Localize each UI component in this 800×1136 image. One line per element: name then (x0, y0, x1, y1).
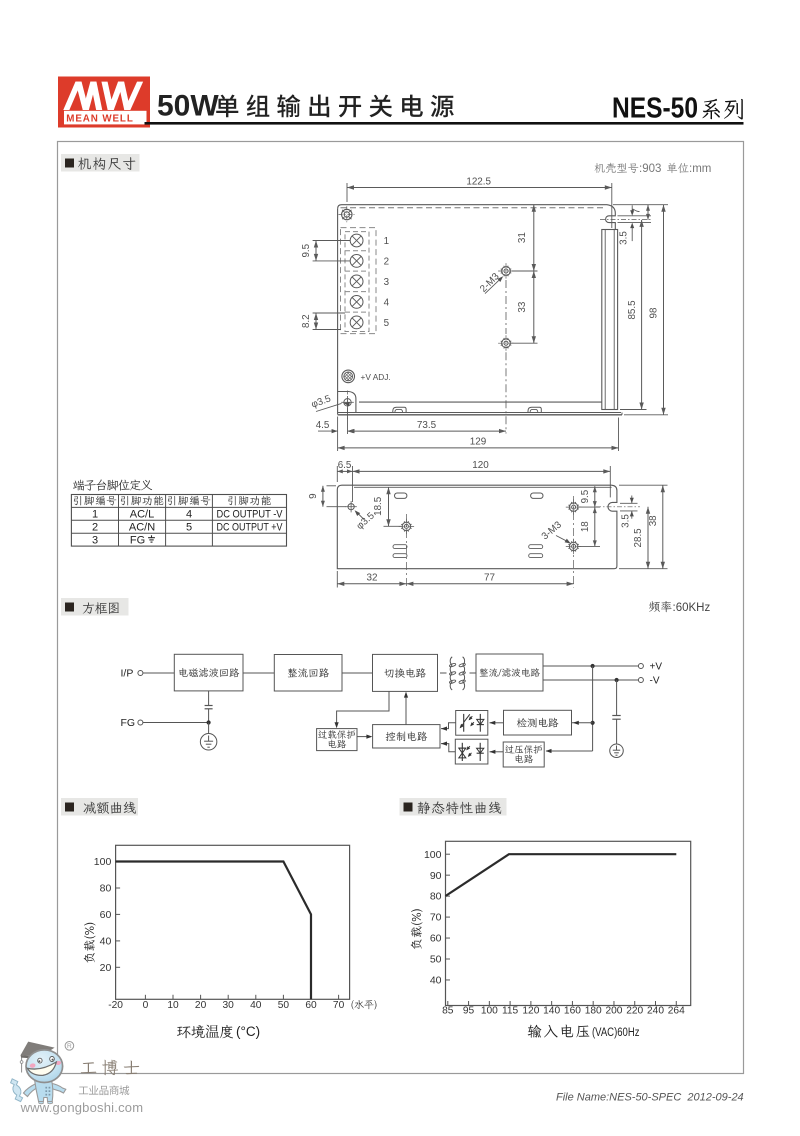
svg-text:18: 18 (580, 521, 591, 532)
svg-text:4.5: 4.5 (316, 420, 330, 431)
svg-text:100: 100 (94, 856, 112, 868)
svg-text:20: 20 (195, 1000, 207, 1011)
svg-text::903: :903 (639, 163, 661, 175)
svg-text:+V: +V (650, 662, 663, 673)
svg-text:160: 160 (564, 1006, 581, 1017)
svg-text:180: 180 (585, 1006, 602, 1017)
svg-text:3.5: 3.5 (621, 514, 632, 528)
svg-text:31: 31 (517, 232, 528, 243)
svg-text:85.5: 85.5 (627, 300, 638, 320)
svg-text:-20: -20 (108, 1000, 123, 1011)
svg-text:40: 40 (250, 1000, 262, 1011)
svg-text:33: 33 (517, 301, 528, 312)
svg-text:8.2: 8.2 (301, 314, 312, 328)
svg-text:DC OUTPUT -V: DC OUTPUT -V (217, 509, 284, 521)
svg-text::60KHz: :60KHz (673, 602, 711, 614)
svg-text:18.5: 18.5 (373, 496, 384, 516)
svg-text:DC OUTPUT +V: DC OUTPUT +V (217, 521, 284, 533)
svg-text:115: 115 (502, 1006, 519, 1017)
svg-text:95: 95 (463, 1006, 475, 1017)
svg-text:77: 77 (484, 572, 495, 583)
svg-text:-V: -V (650, 676, 660, 687)
svg-text:3: 3 (384, 277, 390, 288)
svg-text:50W: 50W (157, 90, 219, 123)
svg-text:1: 1 (92, 509, 98, 521)
svg-text:60: 60 (100, 909, 112, 921)
svg-text:10: 10 (167, 1000, 179, 1011)
svg-text:AC/L: AC/L (130, 509, 154, 521)
svg-text:FG: FG (130, 534, 145, 546)
svg-text:60: 60 (305, 1000, 317, 1011)
svg-text:98: 98 (648, 307, 659, 318)
svg-text:4: 4 (186, 509, 192, 521)
svg-text::mm: :mm (689, 163, 711, 175)
svg-text:MEAN WELL: MEAN WELL (66, 114, 133, 125)
svg-text:100: 100 (424, 849, 442, 861)
svg-text:70: 70 (333, 1000, 345, 1011)
svg-text:3: 3 (92, 534, 98, 546)
svg-text:40: 40 (430, 975, 442, 987)
svg-text:80: 80 (100, 883, 112, 895)
svg-text:1: 1 (384, 236, 389, 247)
svg-text:120: 120 (472, 460, 489, 471)
svg-text:9: 9 (308, 493, 319, 498)
svg-text:9.5: 9.5 (580, 489, 591, 503)
svg-text:R: R (67, 1043, 72, 1050)
svg-text:122.5: 122.5 (466, 176, 491, 187)
svg-text:4: 4 (384, 298, 390, 309)
svg-text:50: 50 (278, 1000, 290, 1011)
svg-text:100: 100 (481, 1006, 498, 1017)
svg-text:50: 50 (430, 954, 442, 966)
svg-text:140: 140 (543, 1006, 560, 1017)
svg-text:File Name:NES-50-SPEC 2012-09: File Name:NES-50-SPEC 2012-09-24 (556, 1092, 744, 1104)
svg-text:200: 200 (605, 1006, 622, 1017)
svg-text:38: 38 (648, 515, 659, 526)
svg-text:6.5: 6.5 (338, 460, 352, 471)
svg-text:70: 70 (430, 912, 442, 924)
svg-text:2: 2 (92, 521, 98, 533)
svg-text:120: 120 (522, 1006, 539, 1017)
svg-text:80: 80 (430, 891, 442, 903)
svg-text:240: 240 (647, 1006, 664, 1017)
svg-text:264: 264 (668, 1006, 685, 1017)
svg-text:220: 220 (626, 1006, 643, 1017)
svg-text:85: 85 (442, 1006, 454, 1017)
svg-text:90: 90 (430, 870, 442, 882)
svg-text:30: 30 (223, 1000, 235, 1011)
svg-text:40: 40 (100, 936, 112, 948)
svg-text:www.gongboshi.com: www.gongboshi.com (20, 1100, 144, 1115)
svg-text:5: 5 (186, 521, 192, 533)
svg-text:3.5: 3.5 (619, 231, 630, 245)
svg-text:28.5: 28.5 (633, 528, 644, 548)
svg-text:0: 0 (143, 1000, 149, 1011)
svg-text:60: 60 (430, 933, 442, 945)
svg-text:129: 129 (470, 437, 487, 448)
svg-text:NES-50: NES-50 (612, 92, 698, 124)
svg-text:20: 20 (100, 962, 112, 974)
svg-text:32: 32 (367, 572, 378, 583)
svg-text:5: 5 (384, 318, 390, 329)
svg-text:I/P: I/P (121, 668, 134, 680)
svg-text:+V ADJ.: +V ADJ. (361, 372, 391, 382)
svg-text:73.5: 73.5 (417, 420, 437, 431)
svg-text:(VAC)60Hz: (VAC)60Hz (592, 1027, 640, 1039)
svg-text:2: 2 (384, 257, 389, 268)
svg-text:AC/N: AC/N (129, 521, 155, 533)
svg-text:9.5: 9.5 (301, 243, 312, 257)
svg-text:(°C): (°C) (236, 1024, 260, 1039)
svg-text:FG: FG (121, 717, 136, 729)
